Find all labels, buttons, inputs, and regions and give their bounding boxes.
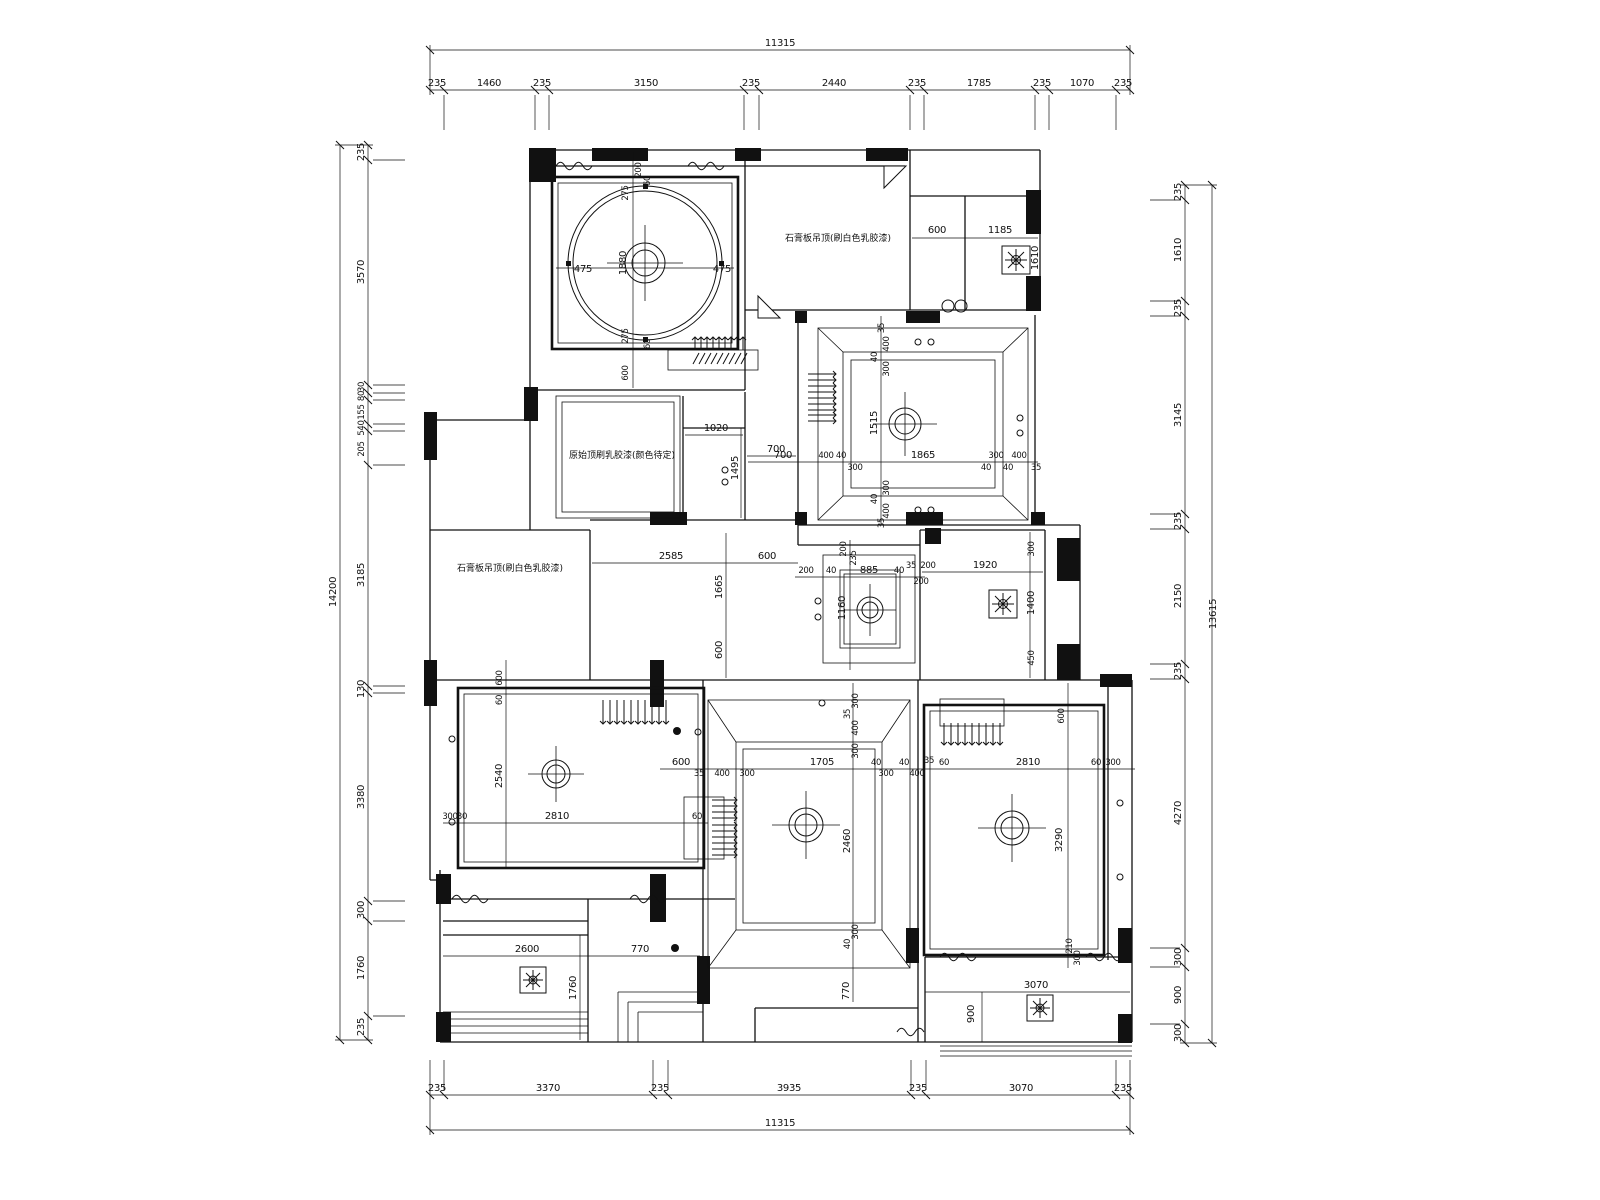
dim-label: 200	[839, 541, 849, 556]
ceiling-note: 原始顶刷乳胶漆(颜色待定)	[569, 449, 675, 461]
dim-label: 400	[909, 769, 924, 779]
dim-label: 3145	[1173, 403, 1184, 427]
curtain-arrows	[684, 797, 737, 859]
dim-label: 540	[357, 420, 367, 435]
dim-label: 35	[877, 518, 887, 528]
dim-label: 1160	[837, 596, 848, 620]
dim-label: 1760	[356, 956, 367, 980]
dim-label: 400	[1011, 451, 1026, 461]
dim-label: 235	[909, 1083, 927, 1094]
exhaust-fan-symbol	[1027, 995, 1053, 1021]
ceiling-lamp-symbol	[873, 392, 937, 456]
dim-label: 1785	[967, 78, 991, 89]
dim-label: 300	[1173, 948, 1184, 966]
dim-label: 235	[1173, 299, 1184, 317]
dim-label: 200	[634, 162, 644, 177]
dim-label: 1610	[1030, 246, 1041, 270]
dim-label: 1495	[730, 456, 741, 480]
dim-label: 1610	[1173, 238, 1184, 262]
hall-kitchen-area: 1020 700 1495 2585 1665 600 600 原始顶刷乳胶漆(…	[457, 396, 798, 678]
dim-label: 40	[826, 566, 836, 576]
dim-label: 155	[357, 404, 367, 419]
ceiling-lamp-symbol	[844, 584, 896, 636]
door-hinge-icon	[673, 727, 681, 735]
dim-label: 60	[692, 812, 702, 822]
dim-label: 600	[928, 225, 946, 236]
balcony-right: 3070 900	[925, 980, 1130, 1042]
dim-label: 885	[860, 565, 878, 576]
dim-label: 900	[1173, 986, 1184, 1004]
dim-label: 80	[357, 391, 367, 401]
dim-label: 40	[981, 463, 991, 473]
dim-label: 300	[851, 743, 861, 758]
dim-label: 60	[1091, 758, 1101, 768]
curtain-arrows	[808, 371, 836, 424]
dim-label: 3070	[1024, 980, 1048, 991]
dim-label: 300	[878, 769, 893, 779]
dim-label: 235	[1033, 78, 1051, 89]
exhaust-fan-symbol	[520, 967, 546, 993]
dim-label: 1665	[714, 575, 725, 599]
dim-label: 400	[882, 503, 892, 518]
dim-label: 300	[851, 693, 861, 708]
dim-label: 40	[836, 451, 846, 461]
ceiling-lamp-symbol	[528, 746, 584, 802]
dim-label: 1920	[973, 560, 997, 571]
dim-label: 400	[714, 769, 729, 779]
dim-label: 600	[621, 365, 631, 380]
dim-label: 300	[1173, 1024, 1184, 1042]
dim-label: 235	[849, 550, 859, 565]
dim-label: 40	[871, 758, 881, 768]
dim-label: 600	[672, 757, 690, 768]
room-coffered-ceiling: 700 400 40 300 1865 300 40 400 35 40 35 …	[748, 316, 1041, 528]
dim-label: 4270	[1173, 801, 1184, 825]
dim-label: 235	[908, 78, 926, 89]
dim-label: 3185	[356, 563, 367, 587]
dim-label: 235	[428, 78, 446, 89]
fold-corner-icon	[758, 296, 780, 318]
dim-total-left: 14200	[328, 577, 339, 607]
dim-label: 235	[1114, 1083, 1132, 1094]
dim-label: 3935	[777, 1083, 801, 1094]
room-top-right: 600 1185 1610	[912, 225, 1041, 312]
dim-label: 30	[457, 812, 467, 822]
exhaust-fan-symbol	[989, 590, 1017, 618]
dim-label: 1760	[568, 976, 579, 1000]
dim-label: 300	[1027, 541, 1037, 556]
dim-label: 600	[714, 641, 725, 659]
dim-label: 400	[882, 336, 892, 351]
dim-label: 235	[1173, 512, 1184, 530]
dim-label: 1515	[869, 411, 880, 435]
floor-plan-canvas: 11315 235 1460 235 3150 235 2440 235 178…	[0, 0, 1600, 1200]
dim-label: 770	[631, 944, 649, 955]
left-dimension-chain: 14200 235 3570 30 80 155 540 205 3185 13…	[328, 141, 405, 1044]
top-dimension-chain: 11315 235 1460 235 3150 235 2440 235 178…	[426, 38, 1134, 130]
dim-label: 1460	[477, 78, 501, 89]
dim-label: 200	[798, 566, 813, 576]
dim-label: 300	[356, 901, 367, 919]
door-hinge-icon	[671, 944, 679, 952]
dim-label: 475	[713, 264, 731, 275]
dim-label: 275	[621, 328, 631, 343]
dim-label: 600	[495, 670, 505, 685]
room-circle-ceiling: 475 475 200 275 1880 275 600 60 60	[552, 152, 758, 388]
dim-label: 235	[742, 78, 760, 89]
dim-label: 900	[966, 1005, 977, 1023]
dim-label: 2440	[822, 78, 846, 89]
dim-label: 475	[574, 264, 592, 275]
dim-label: 300	[882, 361, 892, 376]
dim-label: 60	[495, 695, 505, 705]
dim-label: 235	[356, 143, 367, 161]
downlight-symbol	[722, 467, 728, 485]
dim-label: 3380	[356, 785, 367, 809]
dim-label: 35	[906, 561, 916, 571]
dim-label: 275	[621, 185, 631, 200]
dim-label: 1185	[988, 225, 1012, 236]
dim-label: 235	[533, 78, 551, 89]
dim-label: 60	[643, 339, 653, 349]
dim-label: 2460	[842, 829, 853, 853]
downlight-symbol	[695, 700, 825, 735]
downlight-symbol	[915, 339, 1023, 513]
dim-label: 600	[1057, 708, 1067, 723]
dim-label: 770	[841, 982, 852, 1000]
dim-label: 60	[643, 176, 653, 186]
dim-label: 1705	[810, 757, 834, 768]
ceiling-lamp-symbol	[978, 794, 1046, 862]
dim-label: 235	[1173, 183, 1184, 201]
dim-label: 40	[843, 939, 853, 949]
dim-label: 35	[1031, 463, 1041, 473]
dim-label: 3070	[1009, 1083, 1033, 1094]
dim-label: 35	[877, 323, 887, 333]
dim-label: 300	[1105, 758, 1120, 768]
dim-label: 300	[739, 769, 754, 779]
dim-label: 40	[870, 494, 880, 504]
dim-label: 40	[870, 352, 880, 362]
hallway-tray-ceiling: 885 1160 200 200 200 40 40 35 235	[795, 540, 929, 670]
fold-corner-icon	[884, 166, 906, 188]
bottom-dimension-chain: 11315 235 3370 235 3935 235 3070 235	[426, 1060, 1134, 1135]
dim-label: 300	[882, 480, 892, 495]
dim-label: 1070	[1070, 78, 1094, 89]
dim-label: 3150	[634, 78, 658, 89]
downlight-symbol	[1117, 800, 1123, 880]
downlight-symbol	[815, 598, 821, 620]
dim-label: 700	[767, 444, 785, 455]
dim-label: 235	[651, 1083, 669, 1094]
dim-total-top: 11315	[765, 38, 795, 49]
dim-label: 300	[988, 451, 1003, 461]
ceiling-note: 石膏板吊顶(刷白色乳胶漆)	[785, 232, 891, 244]
dim-label: 200	[920, 561, 935, 571]
dim-label: 40	[1003, 463, 1013, 473]
dim-label: 2540	[494, 764, 505, 788]
dim-label: 200	[913, 577, 928, 587]
dim-label: 1865	[911, 450, 935, 461]
dim-label: 450	[1027, 650, 1037, 665]
dim-label: 3290	[1054, 828, 1065, 852]
dim-label: 3370	[536, 1083, 560, 1094]
dim-label: 60	[939, 758, 949, 768]
dim-label: 235	[356, 1018, 367, 1036]
bathroom: 1920 200 300 1400 450	[920, 532, 1043, 678]
dim-label: 235	[1114, 78, 1132, 89]
room-top-middle: 石膏板吊顶(刷白色乳胶漆)	[758, 166, 906, 318]
dim-label: 1400	[1026, 591, 1037, 615]
dim-label: 400	[818, 451, 833, 461]
dim-label: 35	[843, 709, 853, 719]
dim-label: 2150	[1173, 584, 1184, 608]
dim-label: 2600	[515, 944, 539, 955]
ceiling-note: 石膏板吊顶(刷白色乳胶漆)	[457, 562, 563, 574]
dim-label: 235	[1173, 662, 1184, 680]
dim-label: 2585	[659, 551, 683, 562]
dim-label: 35	[924, 756, 934, 766]
dim-label: 3570	[356, 260, 367, 284]
dim-total-right: 13615	[1208, 599, 1219, 629]
dim-total-bottom: 11315	[765, 1118, 795, 1129]
dim-label: 235	[428, 1083, 446, 1094]
dim-label: 40	[899, 758, 909, 768]
room-bottom-left: 600 2540 300 30 2810 60 60	[442, 660, 708, 868]
dim-label: 30	[357, 382, 367, 392]
dim-label: 40	[894, 566, 904, 576]
dim-label: 2810	[545, 811, 569, 822]
ceiling-lamp-symbol	[772, 791, 840, 859]
dim-label: 2810	[1016, 757, 1040, 768]
dim-label: 400	[851, 720, 861, 735]
dim-label: 300	[1073, 950, 1083, 965]
dim-label: 1880	[618, 251, 629, 275]
dim-label: 300	[847, 463, 862, 473]
ceiling-plan-drawing: 11315 235 1460 235 3150 235 2440 235 178…	[0, 0, 1600, 1200]
dim-label: 130	[356, 680, 367, 698]
curtain-arrows	[600, 700, 669, 724]
dim-label: 35	[694, 769, 704, 779]
bedroom-bottom-right: 600 35 60 2810 60 300 3290 210 300	[924, 683, 1123, 968]
exhaust-fan-symbol	[1002, 246, 1030, 274]
balcony-left: 2600 770 1760	[443, 935, 700, 1040]
dim-label: 1020	[704, 423, 728, 434]
dim-label: 205	[357, 441, 367, 456]
right-dimension-chain: 13615 235 1610 235 3145 235 2150 235 427…	[1150, 181, 1219, 1047]
dim-label: 600	[758, 551, 776, 562]
dim-label: 300	[851, 924, 861, 939]
